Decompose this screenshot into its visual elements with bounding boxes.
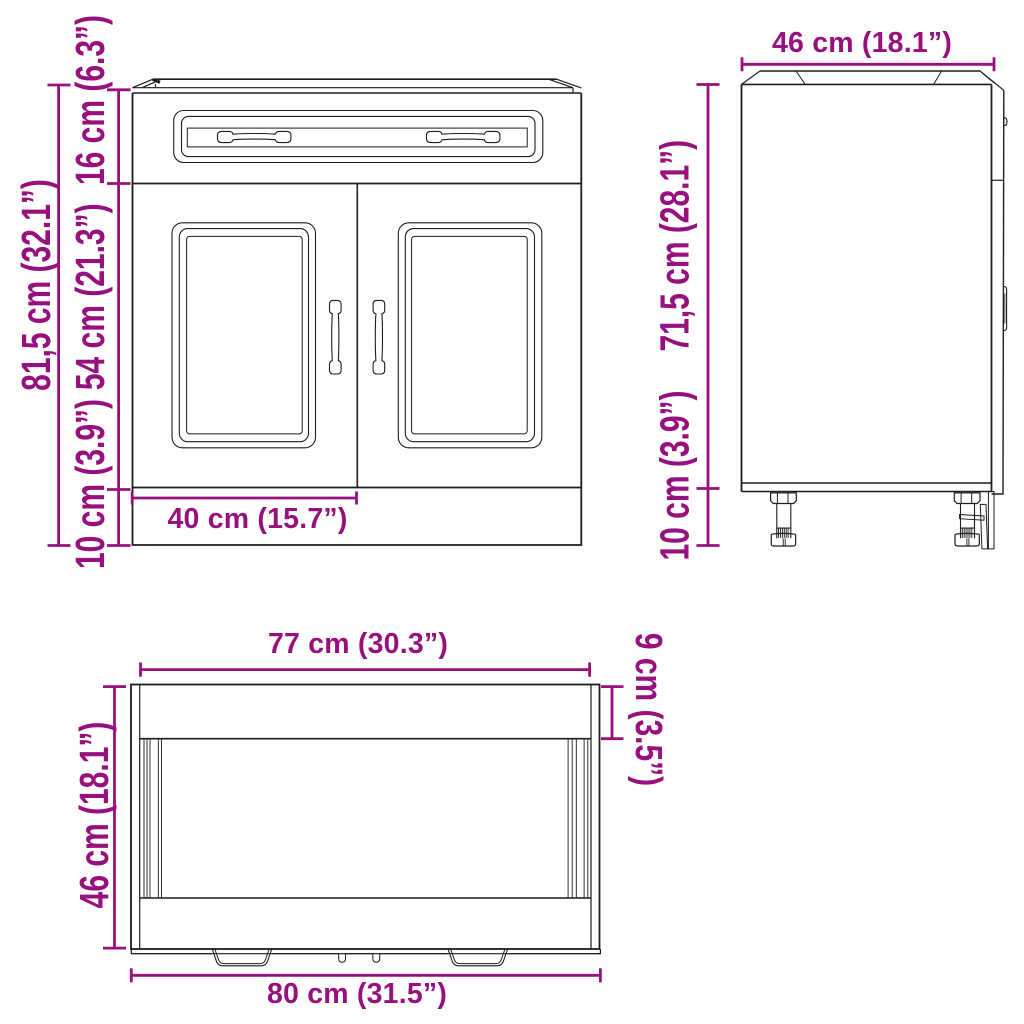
svg-text:46 cm (18.1”): 46 cm (18.1”) — [772, 27, 952, 59]
svg-text:46 cm (18.1”): 46 cm (18.1”) — [72, 722, 118, 909]
svg-text:10 cm (3.9”): 10 cm (3.9”) — [652, 390, 698, 560]
svg-text:54 cm (21.3”): 54 cm (21.3”) — [68, 203, 114, 390]
svg-text:9 cm (3.5”): 9 cm (3.5”) — [627, 633, 669, 786]
svg-text:77 cm (30.3”): 77 cm (30.3”) — [268, 628, 448, 660]
svg-text:71,5 cm (28.1”): 71,5 cm (28.1”) — [652, 140, 698, 352]
svg-text:16 cm (6.3”): 16 cm (6.3”) — [68, 15, 114, 185]
svg-text:40 cm (15.7”): 40 cm (15.7”) — [167, 503, 347, 535]
svg-text:81,5 cm (32.1”): 81,5 cm (32.1”) — [14, 179, 60, 391]
svg-text:80 cm (31.5”): 80 cm (31.5”) — [267, 978, 447, 1010]
svg-text:10 cm (3.9”): 10 cm (3.9”) — [68, 399, 114, 569]
